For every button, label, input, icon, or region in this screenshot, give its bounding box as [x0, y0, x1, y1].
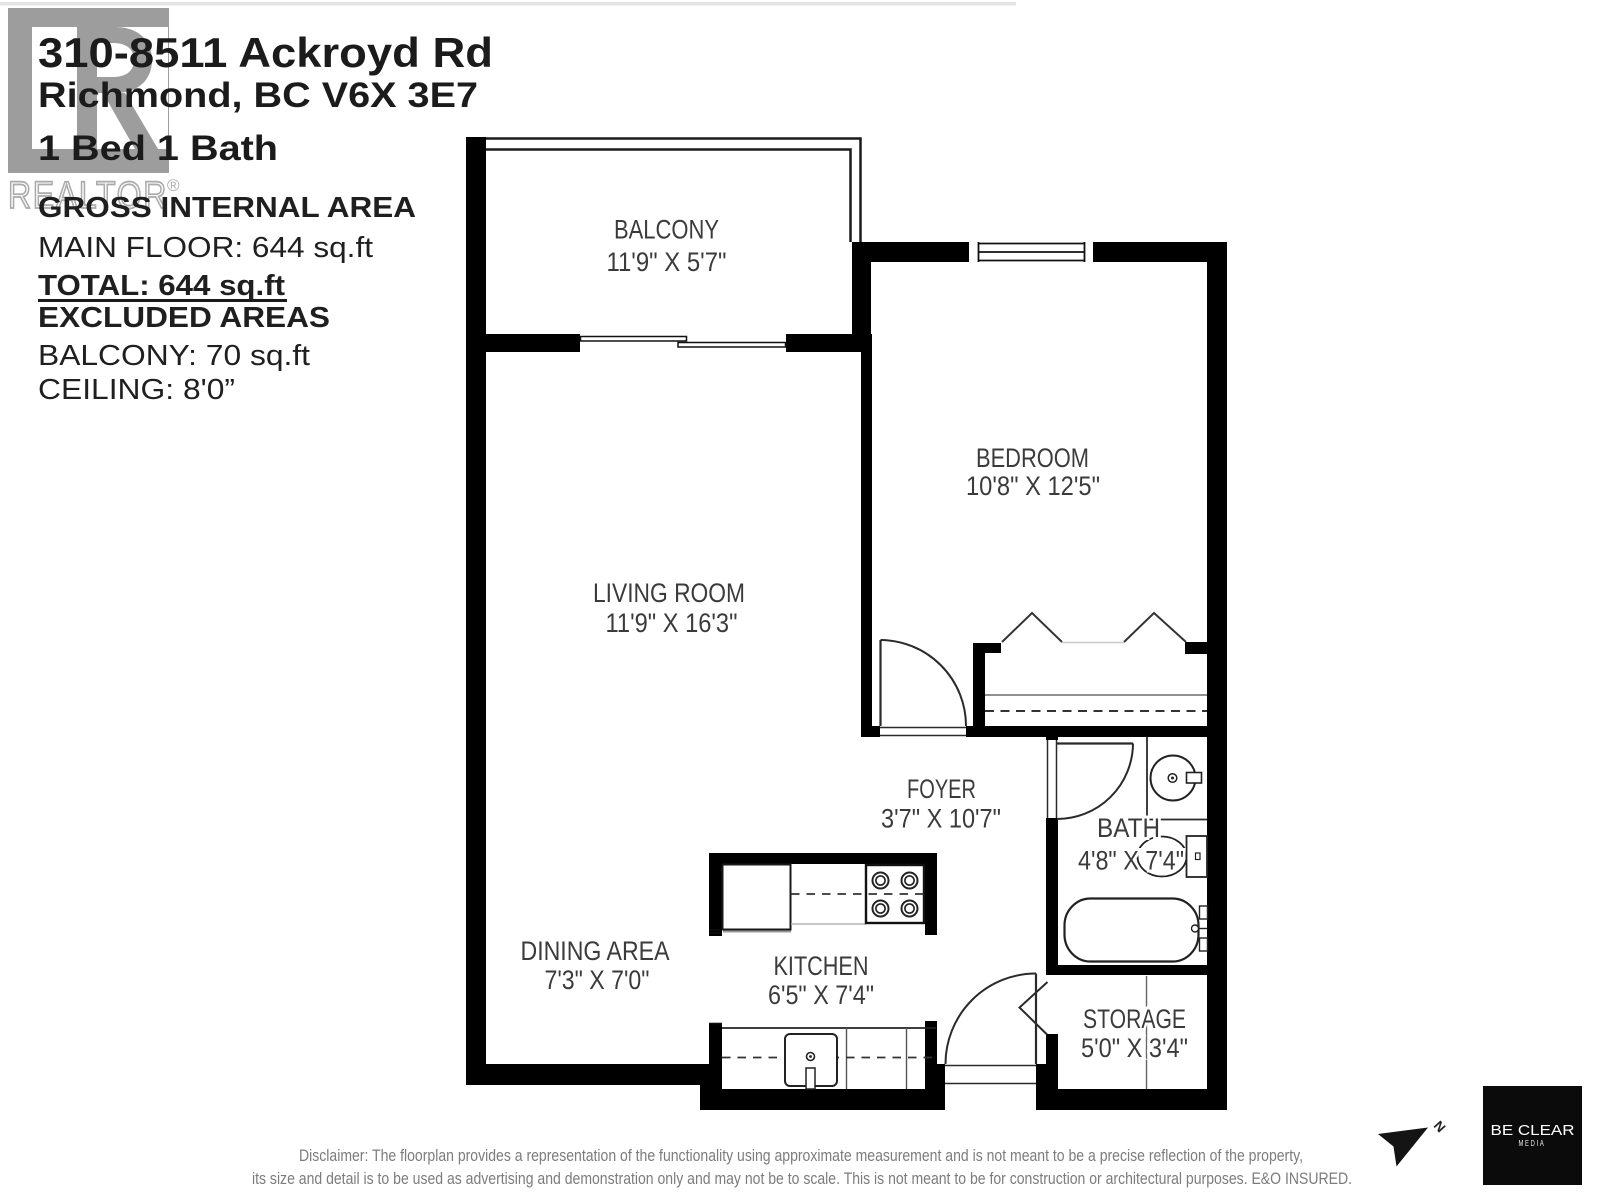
svg-text:3'7" X 10'7": 3'7" X 10'7"	[881, 804, 1001, 834]
svg-text:11'9" X 5'7": 11'9" X 5'7"	[607, 247, 727, 277]
svg-text:Richmond, BC V6X 3E7: Richmond, BC V6X 3E7	[38, 76, 478, 115]
svg-text:BEDROOM: BEDROOM	[976, 443, 1089, 473]
svg-text:EXCLUDED AREAS: EXCLUDED AREAS	[38, 302, 330, 334]
svg-text:10'8" X 12'5": 10'8" X 12'5"	[966, 471, 1100, 501]
svg-text:FOYER: FOYER	[907, 774, 976, 804]
svg-text:11'9" X 16'3": 11'9" X 16'3"	[606, 608, 738, 638]
svg-text:CEILING: 8'0”: CEILING: 8'0”	[38, 374, 235, 406]
svg-text:7'3" X 7'0": 7'3" X 7'0"	[545, 965, 650, 995]
svg-text:Disclaimer: The floorplan prov: Disclaimer: The floorplan provides a rep…	[299, 1146, 1303, 1165]
svg-text:BATH: BATH	[1097, 813, 1160, 843]
svg-text:its size and detail is to be u: its size and detail is to be used as adv…	[252, 1169, 1352, 1188]
svg-text:N: N	[1431, 1118, 1449, 1135]
svg-text:KITCHEN: KITCHEN	[774, 951, 869, 981]
svg-text:LIVING ROOM: LIVING ROOM	[593, 578, 745, 608]
svg-text:6'5" X 7'4": 6'5" X 7'4"	[768, 980, 874, 1010]
svg-text:STORAGE: STORAGE	[1083, 1004, 1186, 1034]
svg-text:5'0" X 3'4": 5'0" X 3'4"	[1081, 1033, 1188, 1063]
svg-text:TOTAL: 644 sq.ft: TOTAL: 644 sq.ft	[38, 270, 285, 302]
svg-text:1 Bed 1 Bath: 1 Bed 1 Bath	[38, 129, 278, 168]
svg-text:310-8511 Ackroyd Rd: 310-8511 Ackroyd Rd	[38, 29, 493, 76]
svg-text:MAIN FLOOR: 644 sq.ft: MAIN FLOOR: 644 sq.ft	[38, 232, 373, 264]
svg-text:DINING AREA: DINING AREA	[521, 936, 670, 966]
svg-text:MEDIA: MEDIA	[1519, 1138, 1546, 1148]
svg-text:BE CLEAR: BE CLEAR	[1491, 1122, 1575, 1139]
svg-text:GROSS INTERNAL AREA: GROSS INTERNAL AREA	[38, 192, 416, 224]
svg-text:BALCONY: BALCONY	[614, 215, 719, 245]
svg-text:BALCONY: 70 sq.ft: BALCONY: 70 sq.ft	[38, 340, 310, 372]
svg-text:4'8" X 7'4": 4'8" X 7'4"	[1078, 846, 1184, 876]
